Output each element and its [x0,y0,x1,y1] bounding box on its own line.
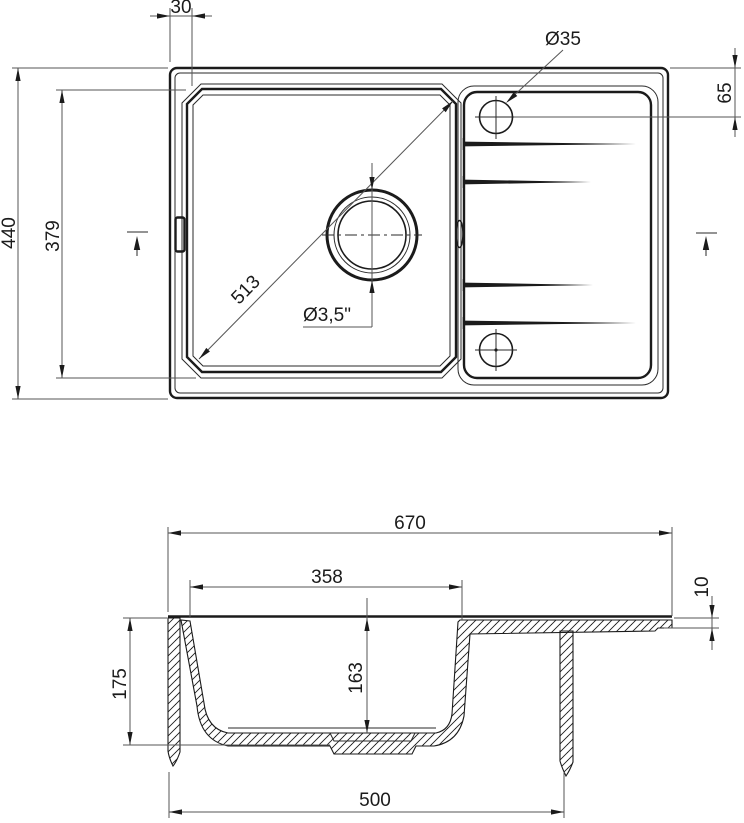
dim-500-label: 500 [359,790,391,811]
dim-bowl-flange-depth: 379 [43,90,196,378]
groove-line [464,142,637,147]
dim-overall-length: 670 [168,513,672,616]
dim-30-label: 30 [170,0,191,18]
right-leg-section [560,631,573,776]
dim-440-label: 440 [0,217,20,249]
dim-total-height: 175 [110,618,330,745]
rim-slot-left [176,218,185,252]
section-view: 670 358 10 175 [110,513,719,818]
dim-163-label: 163 [346,662,367,694]
dim-379-label: 379 [43,220,64,252]
dim-10-label: 10 [692,576,713,597]
dim-drain-label: Ø3,5" [303,305,351,326]
left-wall-section [168,618,180,766]
dim-358-label: 358 [311,567,343,588]
clip-marker-left [127,232,148,256]
faucet-hole-top [475,96,517,139]
dim-bowl-length: 358 [190,567,462,620]
groove-line [464,283,593,288]
plan-view: 30 440 379 65 [0,0,741,399]
groove-line [464,180,591,185]
dim-overall-depth: 440 [0,68,168,399]
drainer-grooves [464,138,638,329]
dim-65-label: 65 [715,82,736,103]
section-profile [168,617,672,777]
bowl-section [181,620,672,754]
dim-670-label: 670 [394,513,426,534]
clip-marker-right [696,233,717,256]
dim-underside-length: 500 [169,772,564,818]
dim-o35-label: Ø35 [545,29,581,50]
sink-drawing: 30 440 379 65 [0,0,744,823]
dim-175-label: 175 [110,668,131,700]
faucet-hole-bottom [475,329,517,371]
dim-bowl-depth: 163 [346,598,370,733]
dim-513-label: 513 [227,271,264,308]
groove-line [464,321,637,326]
technical-drawing-page: 30 440 379 65 [0,0,744,823]
